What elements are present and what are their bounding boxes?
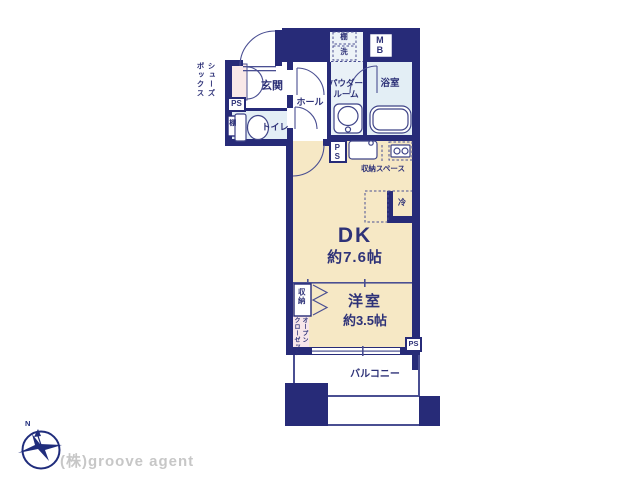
pipe-space-entrance-label: PS: [226, 100, 247, 109]
open-closet-label: オープン クローゼット: [292, 317, 308, 350]
entrance-step-line: [243, 70, 276, 71]
washer-label: 洗: [332, 48, 356, 56]
shoes-box-label: シューズ ボックス: [195, 62, 217, 112]
compass-north-label: N: [25, 420, 30, 428]
powder-room-label: パウダー ルーム: [321, 78, 371, 99]
bathtub-fixture: [370, 106, 411, 133]
shelf-label: 棚: [332, 33, 356, 41]
compass-logo: [18, 429, 62, 469]
balcony-pillar-left: [285, 383, 328, 426]
pipe-space-bedroom-label: PS: [404, 340, 423, 348]
bath-label: 浴室: [370, 79, 410, 89]
balcony-label: バルコニー: [335, 369, 415, 380]
dk-label: DK 約7.6帖: [300, 224, 410, 267]
western-room-label: 洋室 約3.5帖: [310, 294, 420, 328]
kitchen-sink-fixture: [349, 141, 377, 159]
balcony-edge-left: [293, 355, 295, 383]
refrigerator-label: 冷: [394, 199, 410, 208]
company-name: (株)groove agent: [60, 450, 194, 471]
meter-box-label: MB: [374, 35, 384, 57]
floorplan-page: 玄関 ホール トイレ パウダー ルーム 浴室 DK 約7.6帖 洋室 約3.5帖…: [0, 0, 640, 480]
storage-space-label: 収納スペース: [348, 165, 418, 173]
balcony-edge-right: [418, 355, 420, 396]
pipe-space-kitchen-label: PS: [332, 143, 341, 161]
hall-label: ホール: [285, 98, 335, 108]
washbasin-fixture: [334, 104, 362, 133]
closet-label: 収納: [297, 288, 305, 314]
entrance-label: 玄関: [252, 80, 292, 92]
stove-fixture: [391, 145, 410, 157]
balcony-rail-inner: [328, 395, 419, 397]
toilet-shelf-label: 棚: [228, 119, 236, 134]
balcony-pillar-right: [419, 396, 440, 426]
entrance-door-arc: [240, 31, 275, 66]
toilet-label: トイレ: [255, 123, 295, 133]
balcony-rail-outer: [328, 424, 419, 426]
